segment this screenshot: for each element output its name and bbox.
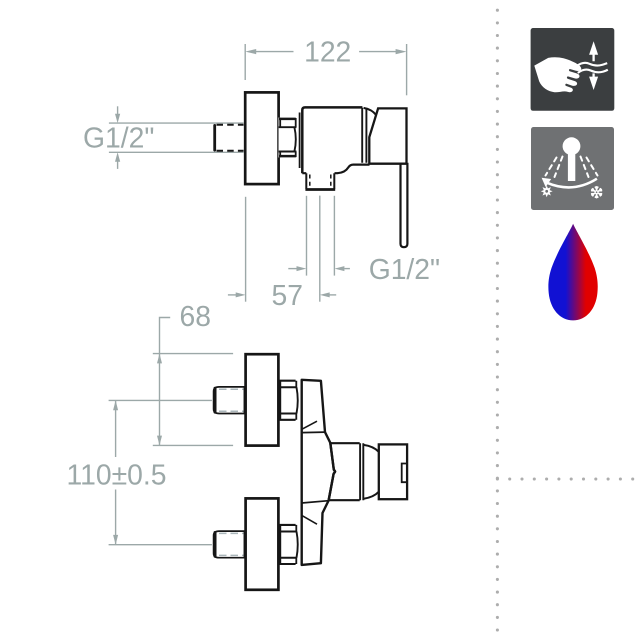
svg-text:G1/2": G1/2" — [369, 253, 440, 285]
svg-text:122: 122 — [304, 35, 351, 67]
svg-text:57: 57 — [271, 279, 302, 311]
svg-text:68: 68 — [180, 300, 211, 332]
svg-text:110±0.5: 110±0.5 — [67, 459, 167, 491]
svg-text:G1/2": G1/2" — [83, 122, 154, 154]
